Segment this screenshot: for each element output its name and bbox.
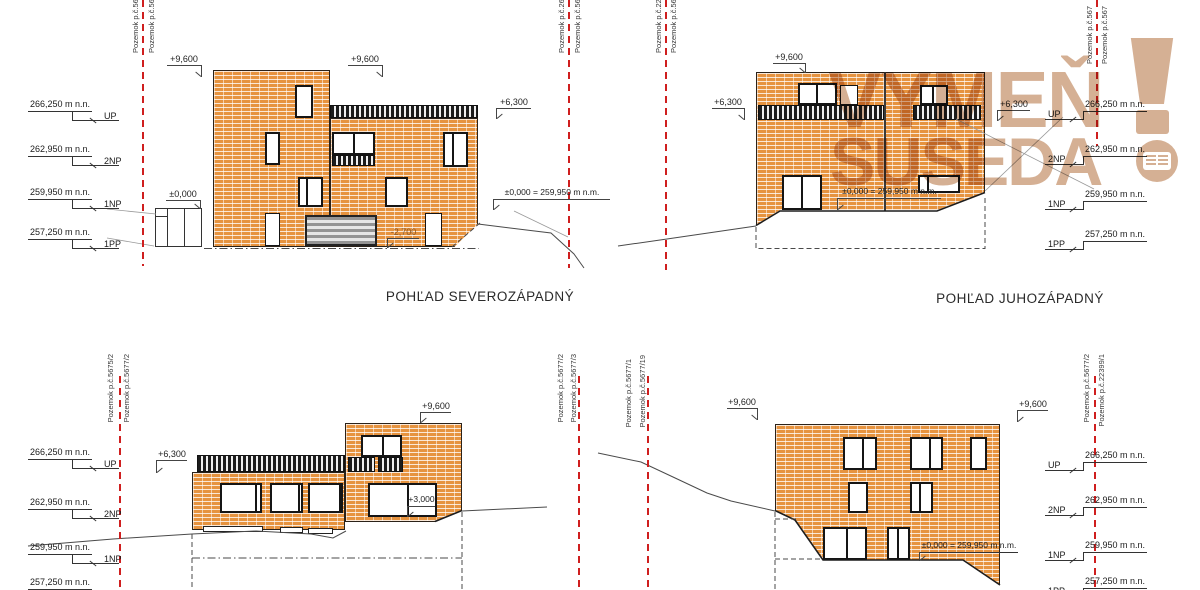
parcel-label: Pozemok p.č.567	[669, 0, 678, 53]
window	[782, 175, 822, 210]
balcony-railing	[378, 457, 403, 472]
balcony-railing	[332, 155, 375, 166]
level-marker: 266,250 m n.n.UP	[28, 448, 120, 460]
dimension-tick-icon	[837, 198, 838, 210]
level-label: UP	[104, 460, 117, 470]
level-value: 257,250 m n.n.	[28, 228, 92, 240]
parcel-label: Pozemok p.č.267	[557, 0, 566, 53]
level-label: 1PP	[1048, 240, 1065, 250]
level-label: UP	[1048, 110, 1061, 120]
terrace-railing	[913, 105, 981, 120]
ground-vent	[308, 528, 333, 534]
window	[843, 437, 877, 470]
dimension-text: +9,600	[775, 52, 803, 62]
window	[295, 85, 313, 118]
dimension-tick-icon	[382, 65, 383, 77]
brick-facade	[775, 424, 1000, 585]
level-label: 1NP	[104, 555, 122, 565]
window	[443, 132, 468, 167]
window	[848, 482, 868, 513]
parcel-label: Pozemok p.č.567	[147, 0, 156, 53]
level-marker: 257,250 m n.n.1PP	[1045, 577, 1145, 588]
window	[887, 527, 910, 560]
level-value: 266,250 m n.n.	[28, 448, 92, 460]
parcel-label: Pozemok p.č.5677/1	[624, 359, 633, 427]
dimension-label: ±0,000 = 259,950 m n.m.	[494, 188, 610, 200]
dimension-label: +9,600	[421, 401, 451, 413]
level-label: 1NP	[104, 200, 122, 210]
terrace-railing	[330, 105, 478, 118]
window	[270, 483, 303, 513]
level-label: 2NP	[104, 510, 122, 520]
level-label: 1PP	[104, 240, 121, 250]
window	[308, 483, 343, 513]
dimension-label: +6,300	[497, 97, 531, 109]
parcel-label: Pozemok p.č.567	[131, 0, 140, 53]
dimension-label: +9,600	[727, 397, 757, 409]
garage-door	[305, 215, 377, 246]
level-value: 259,950 m n.n.	[28, 543, 92, 555]
terrace-railing	[197, 455, 345, 472]
dimension-text: +6,300	[158, 449, 186, 459]
window	[910, 482, 933, 513]
balcony-railing	[348, 457, 375, 472]
dimension-text: ±0,000 = 259,950 m n.m.	[922, 540, 1017, 550]
dimension-label: -2,700	[388, 227, 419, 239]
dimension-text: +9,600	[351, 54, 379, 64]
parcel-label: Pozemok p.č.567	[573, 0, 582, 53]
parcel-label: Pozemok p.č.567	[1085, 6, 1094, 64]
window	[385, 177, 408, 207]
logo-card-icon	[1143, 152, 1171, 170]
dimension-label: +9,600	[167, 54, 201, 66]
door	[265, 213, 280, 246]
dimension-text: +3,000	[408, 494, 434, 504]
level-value: 259,950 m n.n.	[1083, 541, 1147, 553]
exclamation-dot-icon	[1136, 110, 1169, 134]
dimension-text: +9,600	[170, 54, 198, 64]
level-label: UP	[104, 112, 117, 122]
window	[798, 83, 837, 105]
level-value: 262,950 m n.n.	[1083, 145, 1147, 157]
dimension-label: +3,000	[408, 495, 435, 507]
dimension-text: +9,600	[422, 401, 450, 411]
parcel-label: Pozemok p.č.5677/2	[1082, 354, 1091, 422]
dimension-tick-icon	[493, 199, 494, 210]
parcel-boundary-line	[1096, 0, 1098, 146]
dimension-label: +6,300	[157, 449, 187, 461]
level-marker: 262,950 m n.n.2NP	[28, 145, 120, 157]
dimension-text: +9,600	[1019, 399, 1047, 409]
dimension-tick-icon	[997, 110, 998, 121]
parcel-label: Pozemok p.č.5677/2	[122, 354, 131, 422]
level-marker: 257,250 m n.n.1PP	[1045, 230, 1145, 241]
entrance-structure	[155, 208, 202, 247]
level-label: UP	[1048, 461, 1061, 471]
dimension-tick-icon	[805, 63, 806, 73]
level-marker: 259,950 m n.n.1NP	[1045, 190, 1145, 201]
dimension-text: ±0,000 = 259,950 m n.m.	[505, 187, 600, 197]
window	[361, 435, 402, 457]
level-marker: 262,950 m n.n.2NP	[1045, 496, 1145, 507]
dimension-label: ±0,000	[166, 189, 200, 201]
dimension-tick-icon	[744, 108, 745, 120]
window	[220, 483, 262, 513]
parcel-label: Pozemok p.č.223	[654, 0, 663, 53]
dimension-label: ±0,000 = 259,950 m n.m.	[920, 541, 1018, 553]
dimension-tick-icon	[496, 108, 497, 119]
level-value: 262,950 m n.n.	[28, 498, 92, 510]
dimension-text: +6,300	[714, 97, 742, 107]
dimension-tick-icon	[387, 238, 388, 248]
parcel-label: Pozemok p.č.5677/3	[569, 354, 578, 422]
dimension-tick-icon	[156, 460, 157, 473]
parcel-boundary-line	[665, 0, 667, 270]
level-marker: 259,950 m n.n.1NP	[1045, 541, 1145, 552]
level-value: 266,250 m n.n.	[1083, 451, 1147, 463]
dimension-label: +9,600	[348, 54, 382, 66]
level-value: 262,950 m n.n.	[28, 145, 92, 157]
level-marker: 266,250 m n.n.UP	[28, 100, 120, 112]
window	[920, 85, 948, 105]
dimension-tick-icon	[407, 506, 408, 517]
dimension-label: +9,600	[1018, 399, 1048, 411]
dimension-text: ±0,000	[169, 189, 196, 199]
parcel-boundary-line	[568, 0, 570, 268]
level-value: 266,250 m n.n.	[1083, 100, 1147, 112]
parcel-label: Pozemok p.č.567	[1100, 6, 1109, 64]
dimension-label: +9,600	[773, 52, 805, 64]
parcel-boundary-line	[142, 0, 144, 266]
window	[910, 437, 943, 470]
window	[823, 527, 867, 560]
drawing-title: POHĽAD JUHOZÁPADNÝ	[890, 291, 1150, 306]
level-marker: 259,950 m n.n.1NP	[28, 543, 120, 555]
ground-vent	[203, 526, 263, 532]
level-label: 1NP	[1048, 551, 1066, 561]
dimension-tick-icon	[757, 408, 758, 420]
drawing-title: POHĽAD SEVEROZÁPADNÝ	[350, 289, 610, 304]
parcel-label: Pozemok p.č.22399/1	[1097, 354, 1106, 427]
dimension-tick-icon	[201, 65, 202, 77]
level-value: 259,950 m n.n.	[1083, 190, 1147, 202]
parcel-boundary-line	[647, 376, 649, 590]
parcel-label: Pozemok p.č.5677/2	[556, 354, 565, 422]
level-marker: 257,250 m n.n.1PP	[28, 578, 120, 590]
window	[970, 437, 987, 470]
door	[425, 213, 442, 246]
level-marker: 257,250 m n.n.1PP	[28, 228, 120, 240]
window	[332, 132, 375, 155]
dimension-text: +6,300	[500, 97, 528, 107]
window	[265, 132, 280, 165]
level-value: 257,250 m n.n.	[1083, 230, 1147, 242]
dimension-tick-icon	[420, 412, 421, 423]
dimension-text: -2,700	[391, 227, 417, 237]
parcel-label: Pozemok p.č.5677/19	[638, 355, 647, 428]
parcel-boundary-line	[578, 376, 580, 590]
parcel-label: Pozemok p.č.5675/2	[106, 354, 115, 422]
architectural-drawing-sheet: +9,600 +9,600 +6,300 ±0,000 ±0,000 = 259…	[0, 0, 1200, 590]
dimension-text: +6,300	[1000, 99, 1028, 109]
dimension-label: +6,300	[712, 97, 744, 109]
level-label: 2NP	[1048, 155, 1066, 165]
level-marker: 259,950 m n.n.1NP	[28, 188, 120, 200]
dimension-label: ±0,000 = 259,950 m n.m.	[838, 187, 941, 199]
dimension-tick-icon	[919, 552, 920, 561]
dimension-label: +6,300	[998, 99, 1030, 111]
exclamation-mark-icon	[1129, 38, 1175, 104]
dimension-text: +9,600	[728, 397, 756, 407]
dimension-tick-icon	[1017, 410, 1018, 422]
level-marker: 266,250 m n.n.UP	[1045, 100, 1145, 111]
dimension-text: ±0,000 = 259,950 m n.m.	[842, 186, 937, 196]
level-value: 262,950 m n.n.	[1083, 496, 1147, 508]
parcel-boundary-line	[1094, 376, 1096, 590]
level-value: 257,250 m n.n.	[1083, 577, 1147, 589]
level-label: 2NP	[104, 157, 122, 167]
level-marker: 262,950 m n.n.2NP	[28, 498, 120, 510]
level-marker: 266,250 m n.n.UP	[1045, 451, 1145, 462]
level-value: 266,250 m n.n.	[28, 100, 92, 112]
window	[840, 85, 858, 105]
level-marker: 262,950 m n.n.2NP	[1045, 145, 1145, 156]
level-value: 257,250 m n.n.	[28, 578, 92, 590]
terrace-railing	[758, 105, 884, 120]
ground-vent	[280, 527, 303, 533]
level-label: 1NP	[1048, 200, 1066, 210]
level-label: 2NP	[1048, 506, 1066, 516]
dimension-tick-icon	[200, 200, 201, 209]
window	[298, 177, 323, 207]
level-value: 259,950 m n.n.	[28, 188, 92, 200]
